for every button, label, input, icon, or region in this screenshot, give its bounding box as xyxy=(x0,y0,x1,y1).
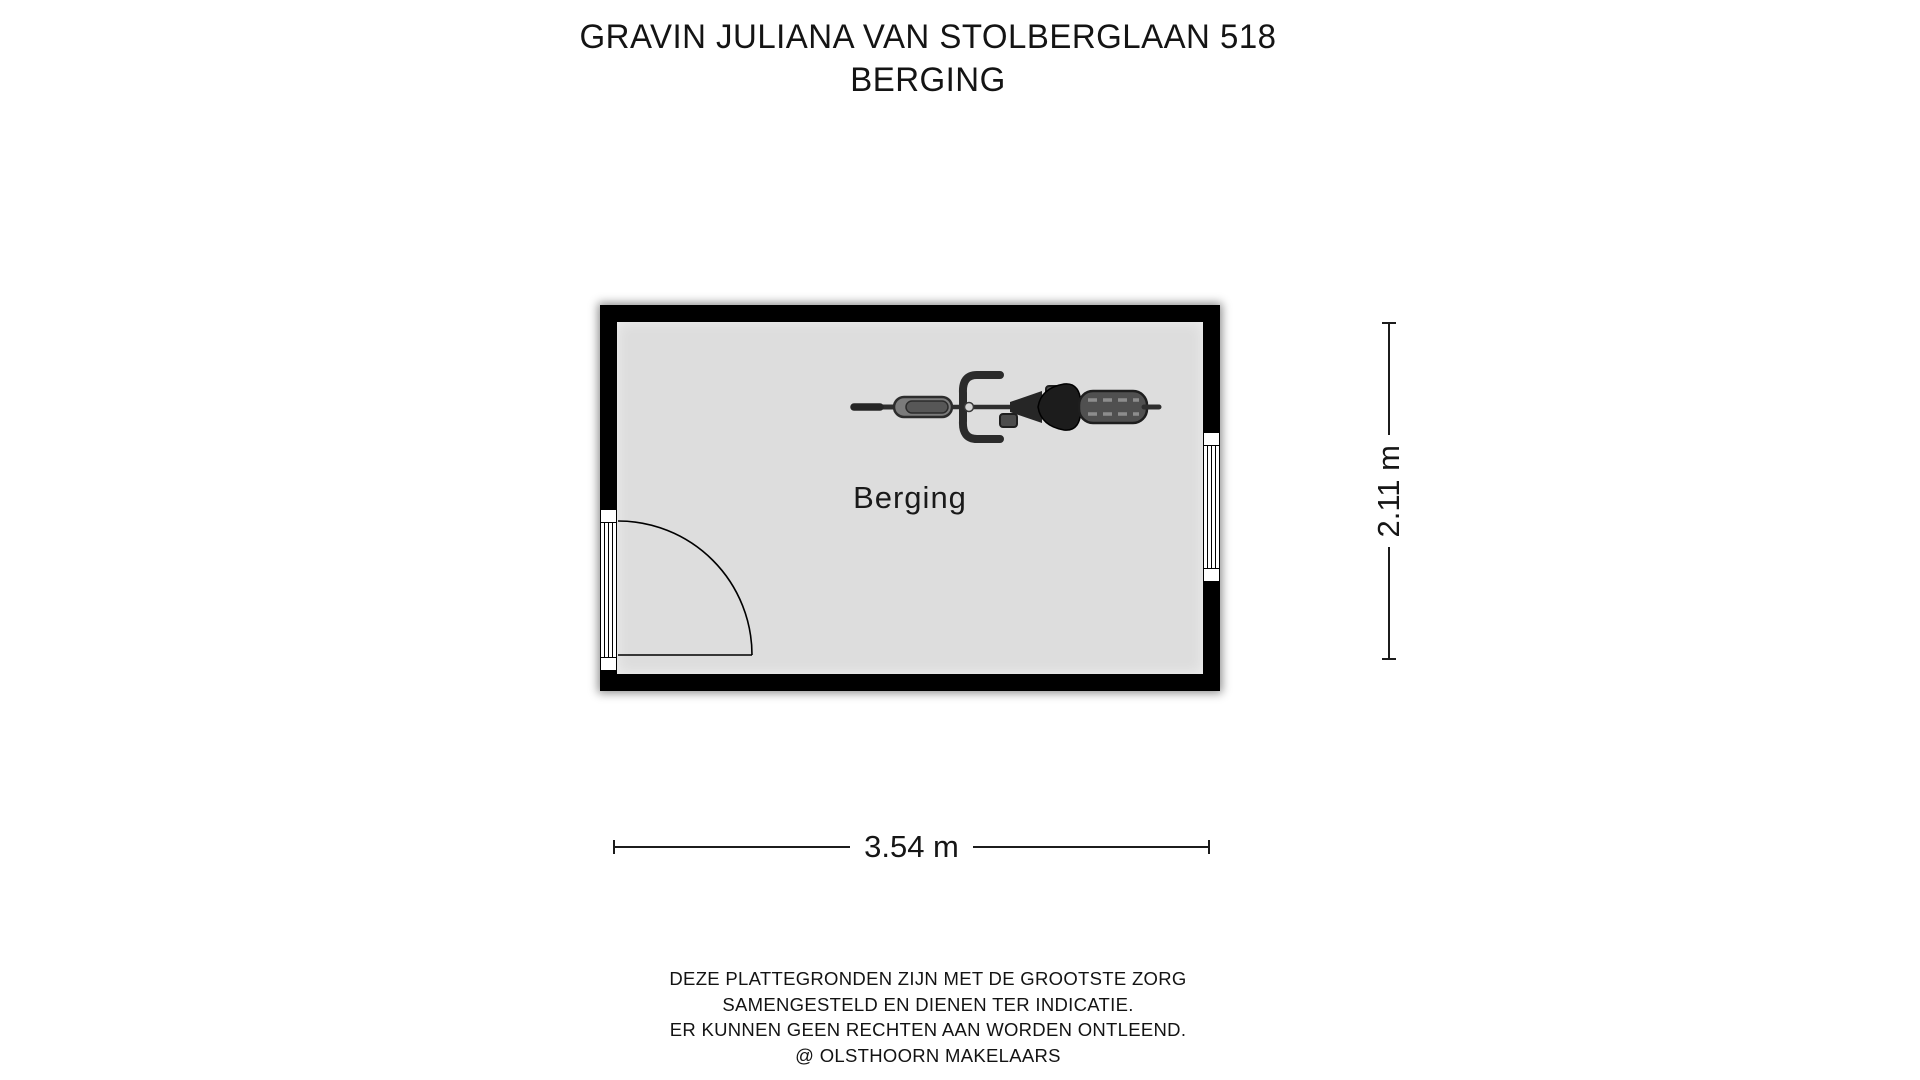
page-title-address: GRAVIN JULIANA VAN STOLBERGLAAN 518 xyxy=(580,16,1277,59)
dimension-width: 3.54 m xyxy=(613,830,1210,864)
dimension-line xyxy=(973,846,1208,848)
window xyxy=(1203,432,1220,582)
window-jamb-top xyxy=(1204,433,1219,445)
dimension-width-label: 3.54 m xyxy=(864,829,959,865)
door-jamb-bottom xyxy=(601,658,616,670)
dimension-height: 2.11 m xyxy=(1372,322,1406,660)
dimension-height-label: 2.11 m xyxy=(1371,445,1407,537)
footer-line: DEZE PLATTEGRONDEN ZIJN MET DE GROOTSTE … xyxy=(669,966,1186,992)
footer-line: ER KUNNEN GEEN RECHTEN AAN WORDEN ONTLEE… xyxy=(669,1017,1186,1043)
dimension-tick xyxy=(1208,840,1210,854)
door-jamb-top xyxy=(601,510,616,522)
page-title-room: BERGING xyxy=(580,59,1277,102)
floor-plan: Berging xyxy=(600,305,1220,691)
dimension-tick xyxy=(1382,658,1396,660)
footer-line: SAMENGESTELD EN DIENEN TER INDICATIE. xyxy=(669,992,1186,1018)
door-opening xyxy=(600,509,617,671)
window-jamb-bottom xyxy=(1204,569,1219,581)
window-glass xyxy=(1204,445,1219,569)
floorplan-page: GRAVIN JULIANA VAN STOLBERGLAAN 518 BERG… xyxy=(0,0,1920,1080)
page-title: GRAVIN JULIANA VAN STOLBERGLAAN 518 BERG… xyxy=(569,16,1288,102)
dimension-line xyxy=(615,846,850,848)
door-leaf xyxy=(601,522,616,658)
bicycle-icon xyxy=(850,367,1162,447)
dimension-line xyxy=(1388,547,1390,658)
footer-line: @ OLSTHOORN MAKELAARS xyxy=(669,1043,1186,1069)
dimension-line xyxy=(1388,324,1390,435)
room-label: Berging xyxy=(853,480,967,516)
footer-disclaimer: DEZE PLATTEGRONDEN ZIJN MET DE GROOTSTE … xyxy=(669,966,1186,1068)
